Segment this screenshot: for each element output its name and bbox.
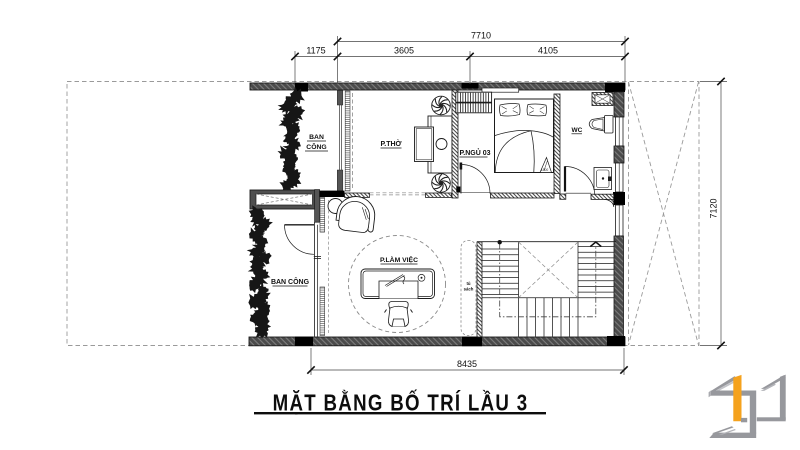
svg-text:8435: 8435 xyxy=(457,359,477,369)
svg-text:MẶT BẰNG BỐ TRÍ LẦU 3: MẶT BẰNG BỐ TRÍ LẦU 3 xyxy=(273,390,529,416)
svg-text:3605: 3605 xyxy=(394,46,414,56)
svg-text:CÔNG: CÔNG xyxy=(306,142,326,151)
svg-text:P.LÀM VIỆC: P.LÀM VIỆC xyxy=(380,255,418,264)
svg-text:1800: 1800 xyxy=(541,168,549,172)
svg-text:BAN CÔNG: BAN CÔNG xyxy=(271,277,310,286)
svg-text:BAN: BAN xyxy=(309,134,324,141)
svg-text:P.THỜ: P.THỜ xyxy=(380,139,401,148)
svg-text:7120: 7120 xyxy=(709,198,719,218)
svg-text:tủ: tủ xyxy=(466,281,470,286)
svg-text:sách: sách xyxy=(464,287,474,292)
svg-text:WC: WC xyxy=(572,127,583,134)
svg-text:P.NGỦ 03: P.NGỦ 03 xyxy=(460,148,491,157)
svg-text:4105: 4105 xyxy=(538,46,558,56)
svg-text:1175: 1175 xyxy=(306,46,325,56)
svg-text:7710: 7710 xyxy=(471,31,491,41)
